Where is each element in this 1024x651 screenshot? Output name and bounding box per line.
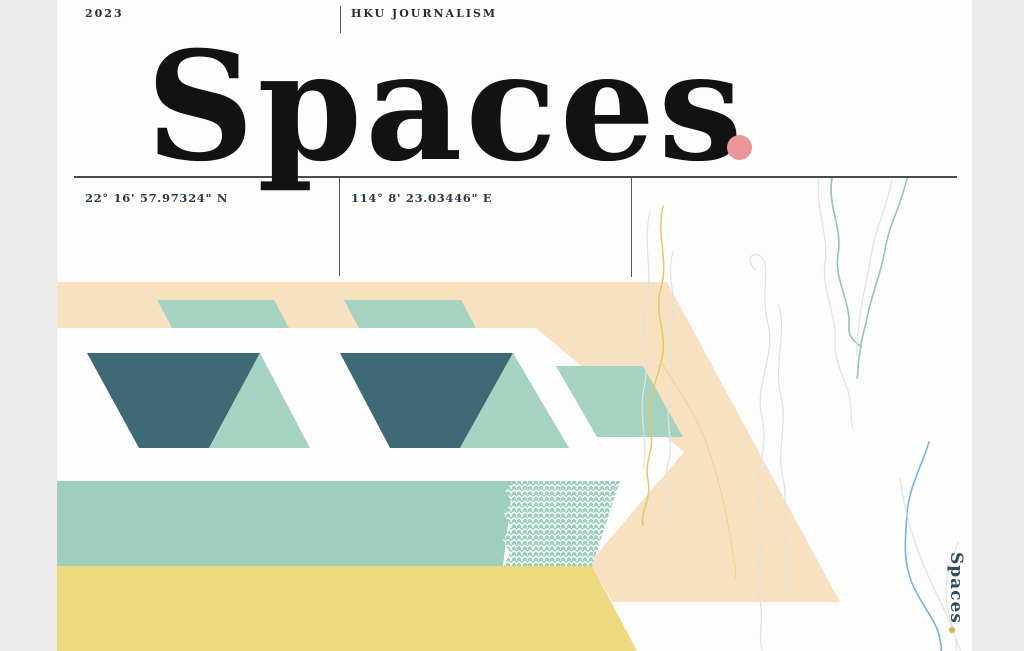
spine-label: Spaces xyxy=(946,552,966,633)
year-label: 2023 xyxy=(85,7,124,20)
poster-page: 2023 HKU JOURNALISM Spaces 22° 16' 57.97… xyxy=(0,0,1024,651)
masthead-title: Spaces xyxy=(146,32,746,182)
yellow-base-band xyxy=(57,566,637,651)
mint-panel-1 xyxy=(157,300,289,328)
wavy-line-teal-1 xyxy=(831,178,861,347)
wavy-line-gray-top-right-2 xyxy=(857,180,892,356)
wavy-line-blue xyxy=(905,442,941,651)
title-period-dot xyxy=(727,135,752,160)
mint-panel-2 xyxy=(344,300,476,328)
wavy-line-teal-2 xyxy=(857,178,907,378)
spine-label-text: Spaces xyxy=(946,552,966,624)
spine-label-dot xyxy=(950,627,956,633)
mint-base-band xyxy=(57,481,513,566)
wavy-line-gray-top-right-1 xyxy=(818,178,853,428)
